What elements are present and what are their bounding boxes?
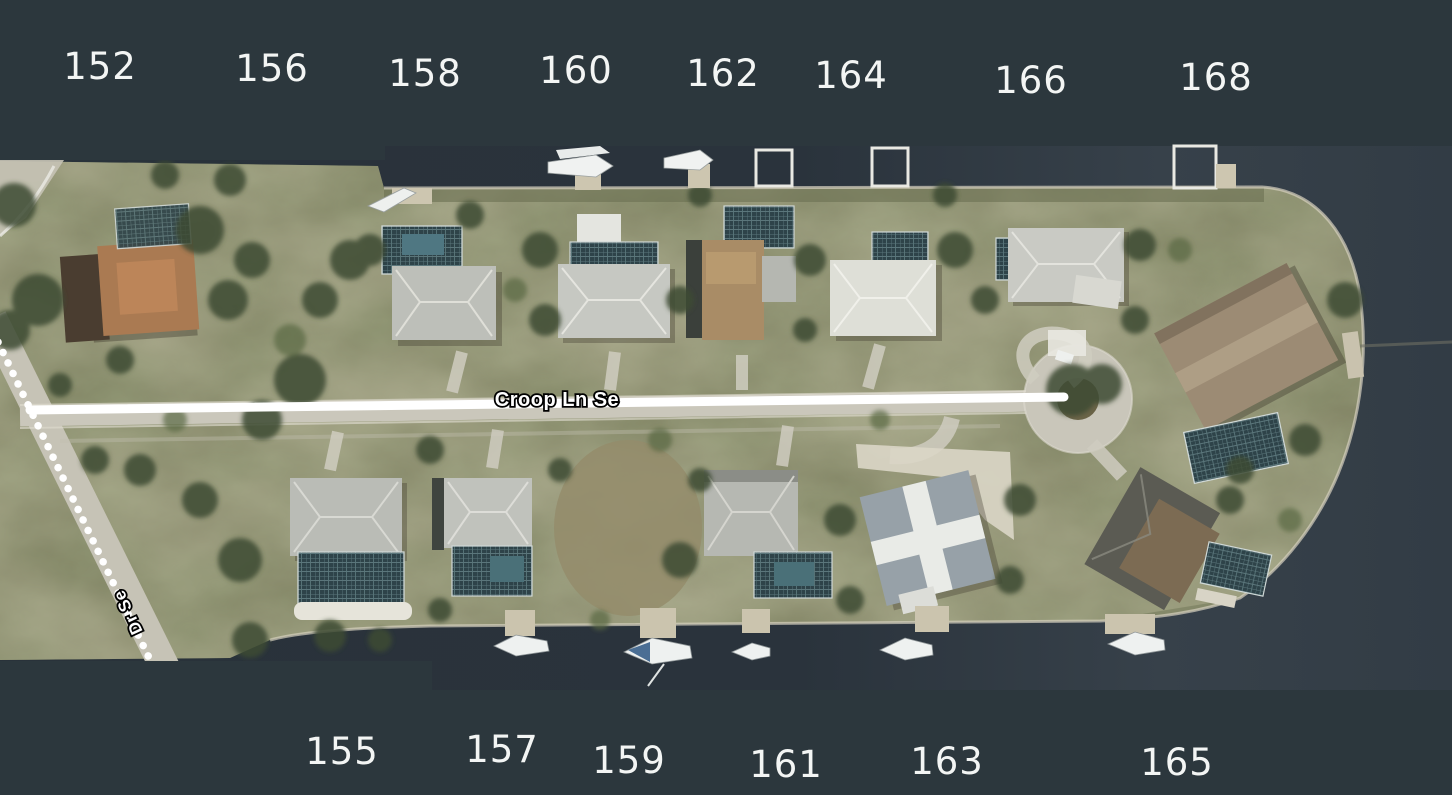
address-label: 163 bbox=[910, 743, 984, 780]
house-155 bbox=[290, 478, 412, 620]
address-label: 168 bbox=[1179, 59, 1253, 96]
satellite-photo: Croop Ln Se Dr Se bbox=[0, 0, 1452, 795]
address-label: 166 bbox=[994, 62, 1068, 99]
address-label: 157 bbox=[465, 731, 539, 768]
house-166 bbox=[996, 228, 1129, 309]
address-label: 159 bbox=[592, 742, 666, 779]
address-label: 161 bbox=[749, 746, 823, 783]
address-label: 158 bbox=[388, 55, 462, 92]
vacant-lot-159 bbox=[554, 440, 702, 616]
address-label: 164 bbox=[814, 57, 888, 94]
address-label: 155 bbox=[305, 733, 379, 770]
address-label: 156 bbox=[235, 50, 309, 87]
address-label: 162 bbox=[686, 55, 760, 92]
street-name-label: Croop Ln Se bbox=[495, 389, 619, 411]
address-label: 152 bbox=[63, 48, 137, 85]
address-label: 160 bbox=[539, 52, 613, 89]
address-label: 165 bbox=[1140, 744, 1214, 781]
aerial-map: Croop Ln Se Dr Se 152 156 158 160 162 16… bbox=[0, 0, 1452, 795]
parking-pad bbox=[1048, 330, 1086, 356]
